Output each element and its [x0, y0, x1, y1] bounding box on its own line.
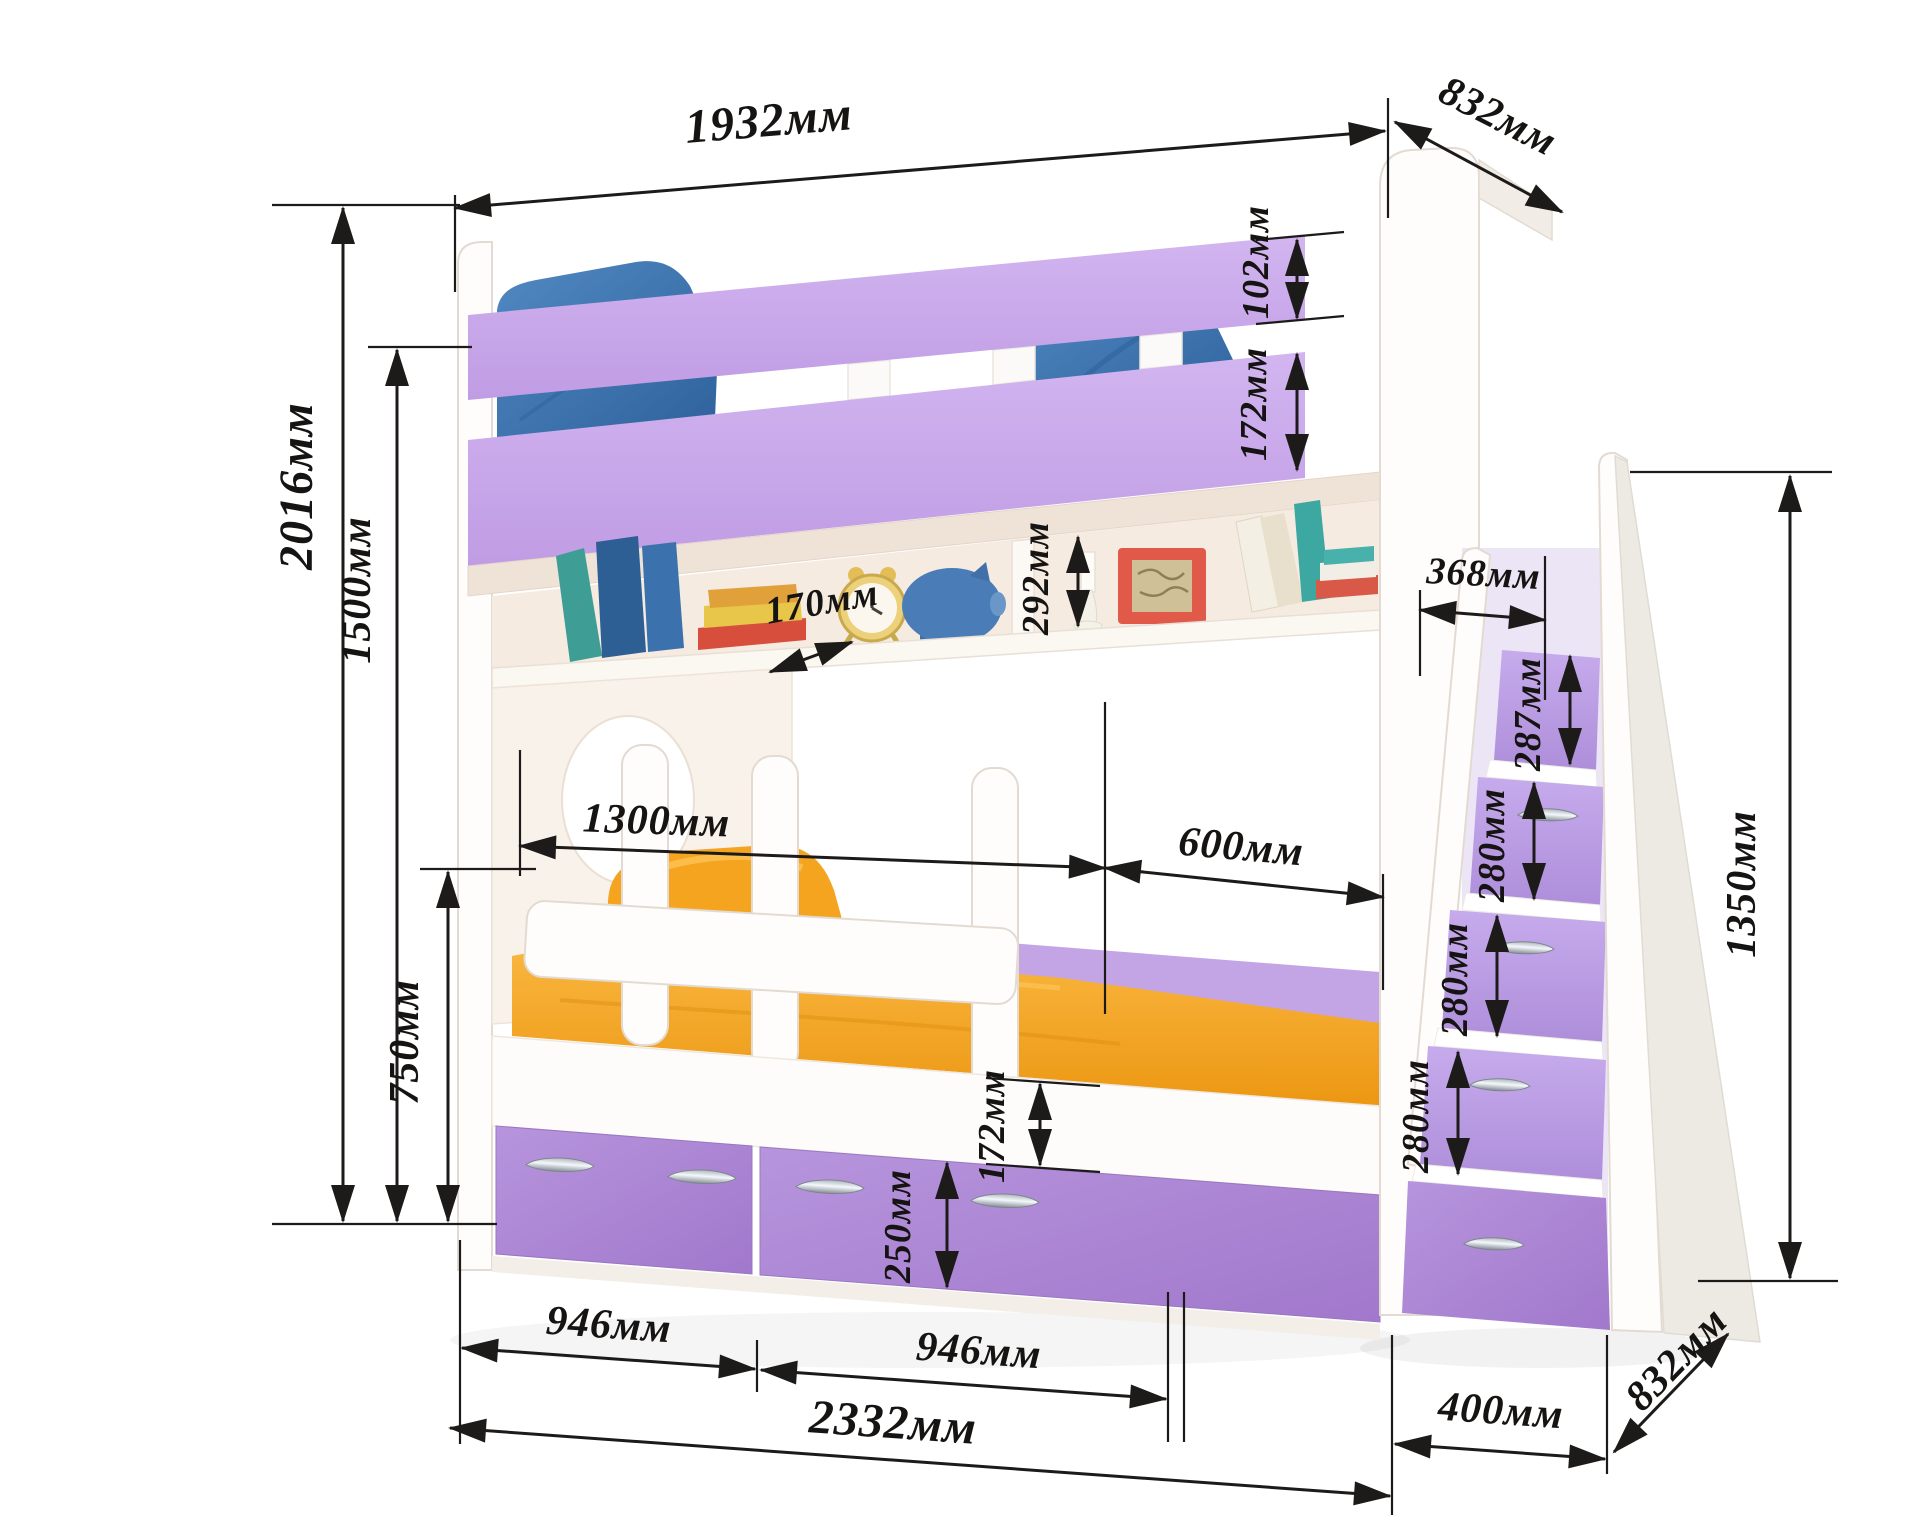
dim-shelf-opening-label: 292мм: [1015, 521, 1057, 636]
dim-step1-label: 287мм: [1507, 657, 1549, 772]
dim-step3-label: 280мм: [1434, 922, 1476, 1037]
dim-drawer-front-label: 250мм: [877, 1169, 919, 1284]
dim-drawer-left-label: 946мм: [545, 1298, 673, 1353]
dim-rail-main-label: 172мм: [1233, 347, 1275, 461]
dim-height-total-label: 2016мм: [270, 402, 323, 571]
dim-bed-base-label: 172мм: [971, 1069, 1013, 1183]
dim-height-upper-label: 1500мм: [334, 516, 380, 664]
dim-ladder-height-label: 1350мм: [1719, 810, 1765, 958]
dimension-diagram: 1932мм 832мм 102мм 172мм 2016мм 1500мм 7…: [0, 0, 1920, 1536]
picture-frame: [1118, 548, 1206, 624]
dim-guard-length-label: 1300мм: [582, 795, 731, 846]
dim-top-length-line: [455, 131, 1385, 208]
dim-ladder-width-line: [1395, 1444, 1605, 1459]
dim-entry-gap-label: 600мм: [1177, 819, 1306, 876]
fence-post: [622, 745, 668, 1045]
dim-drawer-right-label: 946мм: [915, 1324, 1043, 1379]
dim-height-guard-label: 750мм: [382, 979, 428, 1105]
bed-drawer-left: [496, 1126, 752, 1274]
dim-step2-label: 280мм: [1471, 788, 1513, 903]
bunk-bed-drawing: 1932мм 832мм 102мм 172мм 2016мм 1500мм 7…: [0, 0, 1920, 1536]
dim-ladder-top-label: 368мм: [1425, 550, 1542, 598]
ladder-step-4: [1420, 1046, 1606, 1180]
dim-step4-label: 280мм: [1395, 1059, 1437, 1174]
dim-length-total-label: 2332мм: [807, 1390, 979, 1455]
dim-rail-top-label: 102мм: [1235, 205, 1277, 319]
dim-top-length-label: 1932мм: [683, 87, 855, 154]
ladder-bottom-drawer: [1402, 1181, 1610, 1330]
dim-entry-gap-line: [1105, 868, 1383, 897]
dim-ladder-width-label: 400мм: [1436, 1384, 1565, 1439]
